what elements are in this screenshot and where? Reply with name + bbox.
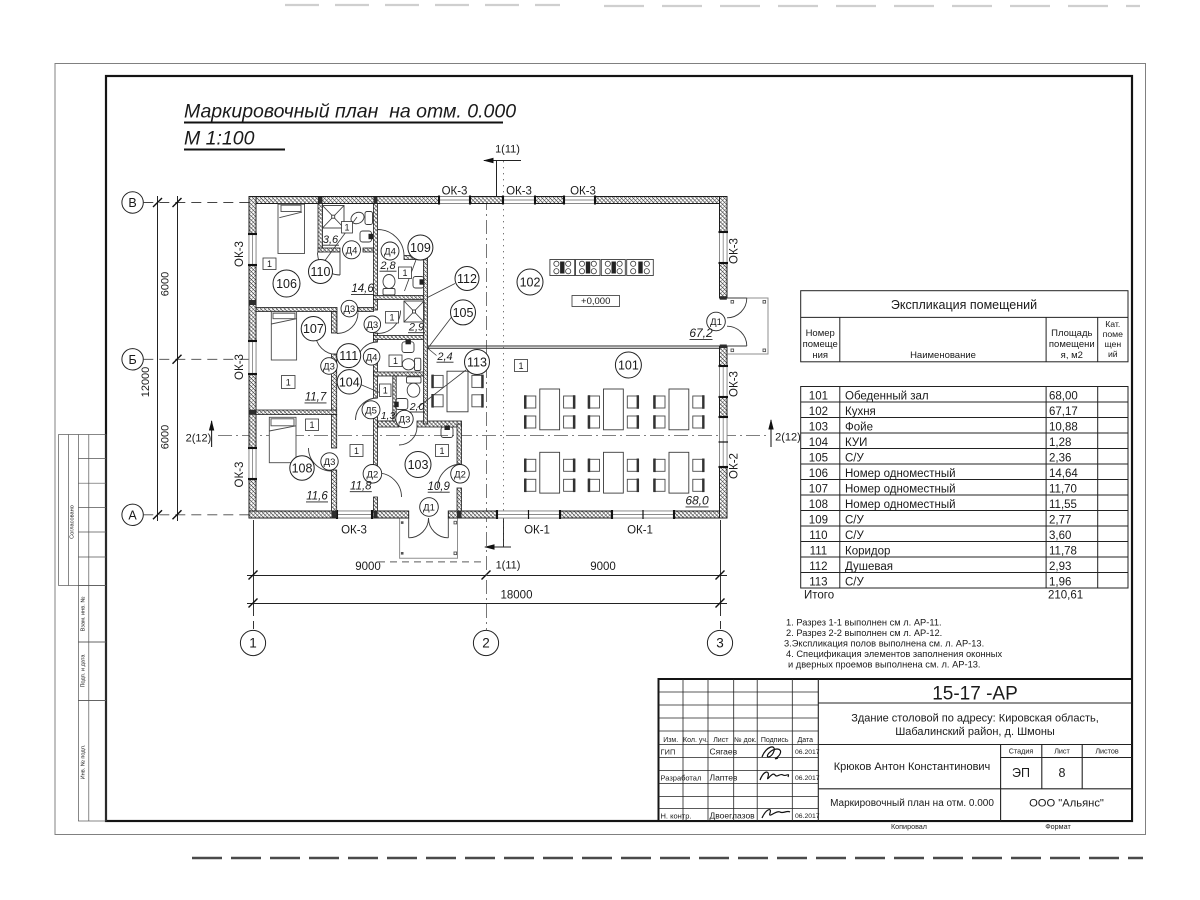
svg-text:помещени: помещени: [1049, 339, 1095, 350]
svg-text:Итого: Итого: [804, 590, 834, 602]
svg-text:Двоеглазов: Двоеглазов: [710, 811, 756, 821]
svg-text:Экспликация помещений: Экспликация помещений: [891, 298, 1037, 312]
svg-text:Д4: Д4: [366, 352, 378, 363]
svg-text:ОК-1: ОК-1: [524, 525, 550, 537]
svg-text:Изм.: Изм.: [663, 737, 678, 744]
svg-text:67,17: 67,17: [1049, 406, 1078, 418]
svg-text:14,6: 14,6: [351, 283, 374, 295]
svg-text:109: 109: [410, 241, 431, 255]
svg-text:1,3: 1,3: [381, 410, 396, 422]
svg-text:11,78: 11,78: [1049, 546, 1077, 558]
svg-text:ОК-3: ОК-3: [729, 371, 741, 397]
svg-text:Б: Б: [128, 353, 136, 367]
svg-text:1,28: 1,28: [1049, 437, 1071, 449]
svg-text:1: 1: [402, 268, 407, 278]
svg-text:68,0: 68,0: [685, 494, 709, 508]
svg-text:103: 103: [408, 458, 429, 472]
svg-text:2. Разрез 2-2 выполнен см л. А: 2. Разрез 2-2 выполнен см л. АР-12.: [786, 628, 942, 638]
svg-text:ООО "Альянс": ООО "Альянс": [1029, 798, 1104, 810]
svg-text:Д2: Д2: [454, 469, 466, 480]
svg-text:Д5: Д5: [365, 405, 377, 416]
svg-text:Сягаев: Сягаев: [710, 747, 738, 757]
svg-text:Копировал: Копировал: [891, 822, 927, 831]
svg-text:ОК-2: ОК-2: [729, 453, 741, 479]
svg-text:6000: 6000: [160, 425, 172, 449]
svg-text:9000: 9000: [355, 561, 381, 573]
svg-text:Номер: Номер: [806, 328, 835, 339]
svg-text:110: 110: [311, 265, 331, 279]
svg-text:Коридор: Коридор: [845, 546, 890, 558]
svg-text:Листов: Листов: [1095, 747, 1119, 756]
svg-text:Д1: Д1: [423, 503, 435, 514]
svg-text:14,64: 14,64: [1049, 468, 1078, 480]
svg-text:Д3: Д3: [323, 362, 335, 373]
svg-text:Инв. № подл.: Инв. № подл.: [81, 744, 87, 779]
svg-text:68,00: 68,00: [1049, 391, 1078, 403]
svg-text:Д3: Д3: [324, 457, 336, 468]
svg-text:Д3: Д3: [366, 320, 378, 331]
svg-text:06.2017: 06.2017: [795, 813, 820, 820]
svg-text:2,0: 2,0: [409, 401, 425, 413]
svg-text:11,8: 11,8: [350, 480, 372, 492]
svg-text:М 1:100: М 1:100: [184, 128, 255, 150]
svg-text:101: 101: [618, 359, 639, 373]
svg-text:Подпись: Подпись: [761, 737, 789, 744]
svg-text:ОК-3: ОК-3: [729, 238, 741, 264]
svg-text:1: 1: [267, 259, 272, 269]
svg-text:1: 1: [249, 636, 257, 651]
svg-text:С/У: С/У: [845, 530, 865, 542]
svg-text:06.2017: 06.2017: [795, 775, 820, 782]
svg-text:ОК-1: ОК-1: [627, 525, 653, 537]
svg-text:2(12): 2(12): [186, 433, 212, 445]
svg-text:1: 1: [309, 420, 314, 430]
svg-text:2,93: 2,93: [1049, 561, 1071, 573]
svg-text:Маркировочный план на отм. 0.: Маркировочный план на отм. 0.000: [184, 101, 516, 123]
svg-text:102: 102: [809, 406, 828, 418]
svg-text:108: 108: [292, 462, 313, 476]
svg-text:2(12): 2(12): [775, 432, 801, 444]
svg-text:2,36: 2,36: [1049, 453, 1071, 465]
svg-text:Наименование: Наименование: [910, 350, 976, 361]
svg-text:Крюков Антон Константинович: Крюков Антон Константинович: [834, 761, 991, 773]
svg-text:3.Экспликация полов выполнена: 3.Экспликация полов выполнена см. л. АР-…: [784, 639, 984, 649]
svg-text:ГИП: ГИП: [661, 748, 676, 757]
svg-text:Маркировочный план на отм. 0.: Маркировочный план на отм. 0.000: [830, 798, 994, 809]
svg-text:С/У: С/У: [845, 453, 865, 465]
svg-text:1: 1: [344, 223, 349, 233]
svg-text:Стадия: Стадия: [1009, 747, 1034, 756]
svg-text:111: 111: [810, 546, 827, 558]
svg-text:108: 108: [809, 499, 828, 511]
svg-text:Кол. уч.: Кол. уч.: [683, 737, 708, 744]
svg-text:ОК-3: ОК-3: [234, 354, 246, 380]
svg-text:109: 109: [809, 515, 828, 527]
svg-text:щен: щен: [1104, 339, 1121, 349]
svg-text:я, м2: я, м2: [1061, 350, 1083, 361]
svg-text:9000: 9000: [590, 561, 616, 573]
svg-text:Д2: Д2: [367, 469, 379, 480]
svg-text:Согласовано: Согласовано: [70, 505, 76, 539]
svg-text:1: 1: [389, 313, 394, 323]
svg-text:ЭП: ЭП: [1012, 766, 1030, 780]
svg-text:Взам. инв. №: Взам. инв. №: [81, 597, 87, 632]
svg-text:107: 107: [809, 484, 828, 496]
svg-text:Лаптев: Лаптев: [710, 773, 738, 783]
svg-text:112: 112: [457, 272, 477, 286]
svg-text:Н. контр.: Н. контр.: [661, 812, 692, 821]
svg-text:10,9: 10,9: [428, 481, 451, 493]
svg-text:12000: 12000: [140, 367, 152, 398]
svg-text:8: 8: [1059, 766, 1066, 780]
svg-text:1: 1: [439, 446, 444, 456]
svg-text:1. Разрез 1-1 выполнен см л. А: 1. Разрез 1-1 выполнен см л. АР-11.: [786, 618, 942, 628]
svg-text:1: 1: [383, 386, 388, 396]
svg-text:3: 3: [716, 636, 724, 651]
svg-text:Фойе: Фойе: [845, 422, 873, 434]
svg-text:107: 107: [303, 322, 324, 336]
svg-text:2,9: 2,9: [408, 322, 424, 334]
svg-text:104: 104: [339, 375, 360, 389]
svg-text:Номер одноместный: Номер одноместный: [845, 484, 956, 496]
svg-text:Шабалинский район, д. Шмоны: Шабалинский район, д. Шмоны: [895, 726, 1055, 738]
svg-text:113: 113: [809, 577, 827, 589]
svg-text:помеще: помеще: [803, 339, 838, 350]
svg-text:ОК-3: ОК-3: [570, 186, 596, 198]
svg-text:1,96: 1,96: [1049, 577, 1071, 589]
svg-text:Душевая: Душевая: [845, 561, 893, 573]
svg-text:3,60: 3,60: [1049, 530, 1071, 542]
svg-text:ий: ий: [1108, 349, 1118, 359]
svg-text:1: 1: [354, 446, 359, 456]
svg-text:Д3: Д3: [343, 304, 355, 315]
svg-text:103: 103: [809, 422, 828, 434]
svg-text:11,6: 11,6: [306, 491, 328, 503]
svg-text:КУИ: КУИ: [845, 437, 867, 449]
svg-text:С/У: С/У: [845, 515, 865, 527]
svg-text:11,70: 11,70: [1049, 484, 1077, 496]
svg-text:106: 106: [809, 468, 828, 480]
svg-text:105: 105: [453, 306, 474, 320]
svg-text:6000: 6000: [160, 272, 172, 296]
svg-text:ОК-3: ОК-3: [506, 186, 532, 198]
svg-text:Д4: Д4: [346, 245, 358, 256]
svg-text:С/У: С/У: [845, 577, 865, 589]
svg-text:Д4: Д4: [384, 247, 396, 258]
svg-text:+0,000: +0,000: [581, 296, 610, 307]
svg-text:Здание столовой по адресу: Кир: Здание столовой по адресу: Кировская обл…: [851, 713, 1099, 725]
svg-text:ОК-3: ОК-3: [341, 525, 367, 537]
svg-text:1(11): 1(11): [495, 144, 520, 156]
svg-text:ОК-3: ОК-3: [234, 462, 246, 488]
svg-text:Обеденный зал: Обеденный зал: [845, 391, 929, 403]
svg-text:ния: ния: [812, 350, 828, 361]
svg-text:Д3: Д3: [399, 415, 411, 426]
svg-text:11,7: 11,7: [305, 392, 327, 404]
svg-text:102: 102: [520, 276, 541, 290]
svg-text:111: 111: [339, 349, 358, 363]
svg-text:Разработал: Разработал: [661, 774, 702, 783]
svg-text:11,55: 11,55: [1049, 499, 1077, 511]
svg-text:2: 2: [482, 636, 490, 651]
svg-text:и дверных проемов выполнена с: и дверных проемов выполнена см. л. АР-13…: [788, 660, 981, 670]
svg-text:67,2: 67,2: [689, 326, 713, 340]
svg-text:4. Спецификация элементов запо: 4. Спецификация элементов заполнения око…: [786, 649, 1002, 659]
svg-text:112: 112: [809, 561, 827, 573]
svg-text:113: 113: [467, 356, 487, 370]
svg-text:Номер одноместный: Номер одноместный: [845, 468, 956, 480]
svg-text:1(11): 1(11): [496, 560, 521, 572]
svg-text:1: 1: [286, 378, 291, 388]
svg-text:105: 105: [809, 453, 828, 465]
svg-text:№ док.: № док.: [734, 737, 756, 744]
svg-text:ОК-3: ОК-3: [442, 186, 468, 198]
svg-text:110: 110: [809, 530, 827, 542]
svg-text:2,8: 2,8: [379, 260, 396, 272]
svg-text:Формат: Формат: [1045, 822, 1071, 831]
svg-text:Площадь: Площадь: [1051, 328, 1092, 339]
svg-text:Кат.: Кат.: [1105, 319, 1120, 329]
svg-text:106: 106: [276, 277, 297, 291]
svg-text:15-17 -АР: 15-17 -АР: [932, 684, 1018, 705]
svg-text:поме: поме: [1103, 329, 1124, 339]
svg-text:Дата: Дата: [798, 737, 814, 744]
svg-text:210,61: 210,61: [1048, 590, 1083, 602]
svg-text:В: В: [128, 196, 136, 210]
svg-text:1: 1: [393, 356, 398, 366]
svg-text:10,88: 10,88: [1049, 422, 1078, 434]
svg-text:06.2017: 06.2017: [795, 749, 820, 756]
svg-text:Кухня: Кухня: [845, 406, 876, 418]
svg-text:18000: 18000: [501, 590, 533, 602]
svg-text:Лист: Лист: [713, 737, 729, 744]
svg-text:ОК-3: ОК-3: [234, 241, 246, 267]
svg-text:Подп. и дата: Подп. и дата: [81, 654, 87, 688]
svg-text:Лист: Лист: [1054, 747, 1070, 756]
svg-text:3,6: 3,6: [323, 234, 339, 246]
svg-text:101: 101: [809, 391, 828, 403]
svg-text:104: 104: [809, 437, 829, 449]
svg-text:2,4: 2,4: [436, 351, 452, 363]
svg-text:Номер одноместный: Номер одноместный: [845, 499, 956, 511]
svg-text:2,77: 2,77: [1049, 515, 1071, 527]
svg-text:1: 1: [518, 361, 523, 371]
svg-text:А: А: [128, 508, 137, 522]
